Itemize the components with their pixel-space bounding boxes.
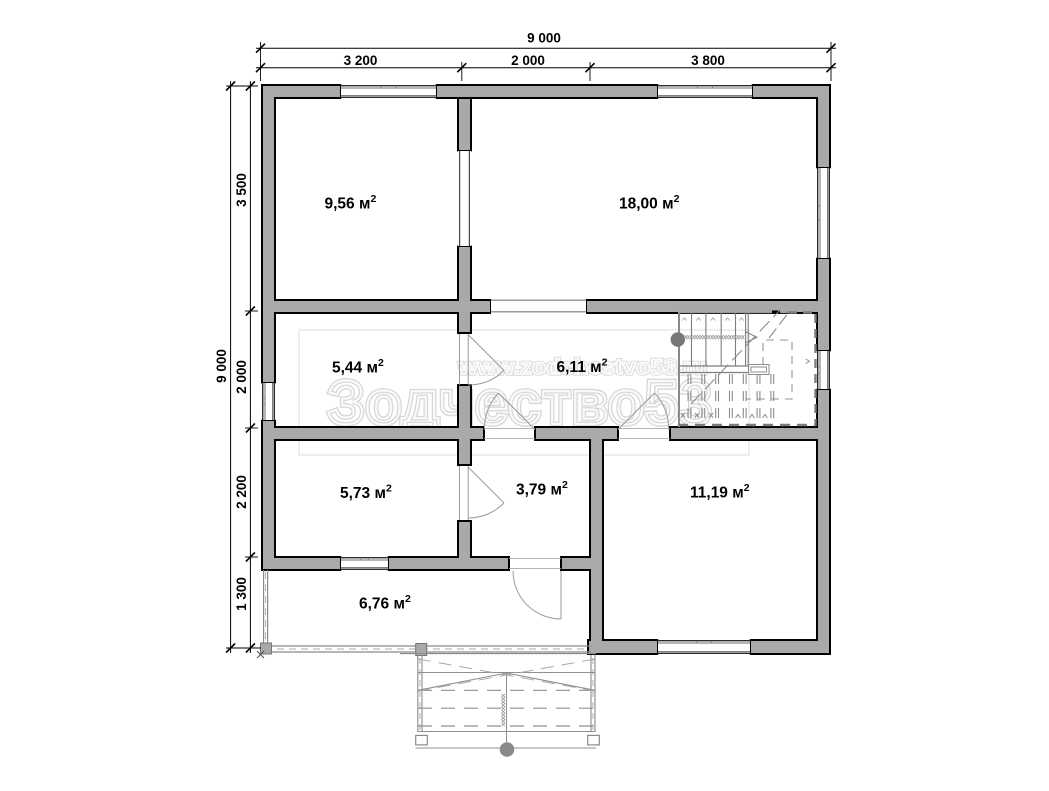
svg-text:3 800: 3 800 <box>691 53 725 68</box>
svg-text:9 000: 9 000 <box>214 349 229 383</box>
svg-text:11,19 м2: 11,19 м2 <box>690 482 750 502</box>
svg-text:9 000: 9 000 <box>527 31 561 46</box>
svg-text:18,00 м2: 18,00 м2 <box>619 193 680 213</box>
svg-text:1 300: 1 300 <box>234 577 249 611</box>
svg-text:6,11 м2: 6,11 м2 <box>557 356 608 376</box>
svg-text:3 200: 3 200 <box>344 53 378 68</box>
svg-text:2 000: 2 000 <box>511 53 545 68</box>
svg-text:5,73 м2: 5,73 м2 <box>340 483 392 503</box>
svg-text:3 500: 3 500 <box>234 173 249 207</box>
svg-text:6,76 м2: 6,76 м2 <box>359 593 411 613</box>
svg-text:5,44 м2: 5,44 м2 <box>332 357 384 377</box>
svg-text:9,56 м2: 9,56 м2 <box>325 193 377 213</box>
svg-text:2 200: 2 200 <box>234 475 249 509</box>
svg-text:2 000: 2 000 <box>234 360 249 394</box>
svg-text:3,79 м2: 3,79 м2 <box>516 479 568 499</box>
